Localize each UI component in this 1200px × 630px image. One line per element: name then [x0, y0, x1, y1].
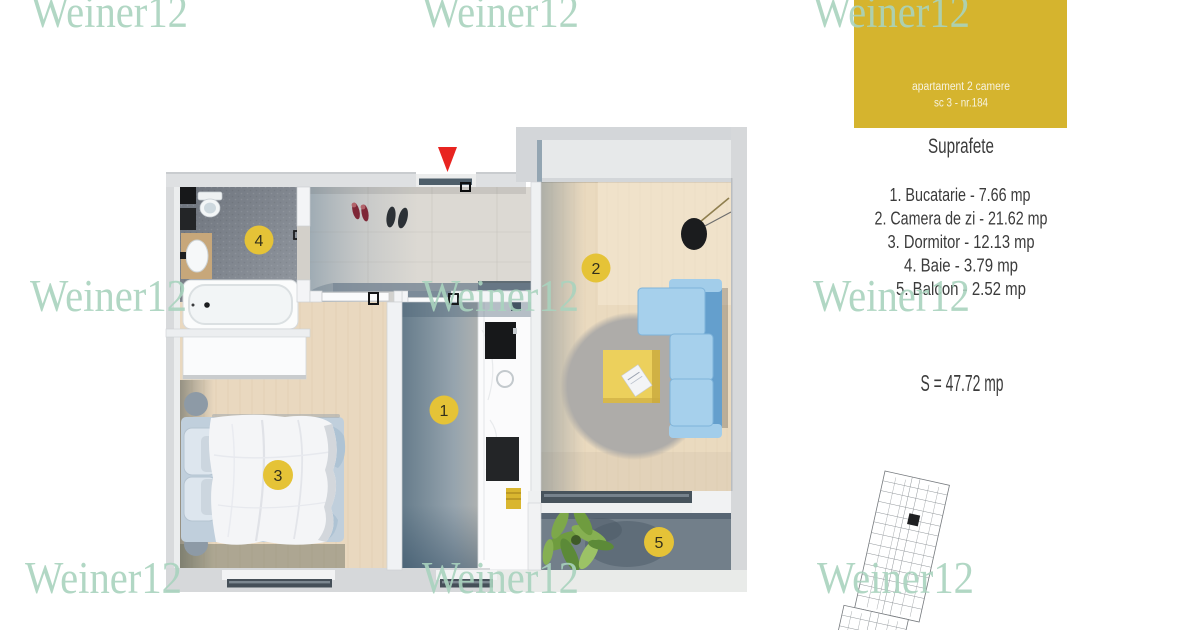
- svg-text:Weiner12: Weiner12: [422, 0, 579, 37]
- svg-text:Weiner12: Weiner12: [31, 0, 188, 37]
- svg-text:5: 5: [655, 535, 664, 552]
- svg-text:Weiner12: Weiner12: [817, 553, 974, 603]
- svg-text:Weiner12: Weiner12: [25, 553, 182, 603]
- svg-text:3. Dormitor - 12.13 mp: 3. Dormitor - 12.13 mp: [888, 231, 1035, 252]
- svg-text:4: 4: [255, 233, 264, 250]
- svg-text:2: 2: [592, 261, 601, 278]
- svg-text:2. Camera de zi - 21.62 mp: 2. Camera de zi - 21.62 mp: [875, 208, 1048, 229]
- svg-text:Weiner12: Weiner12: [813, 0, 970, 37]
- svg-text:Weiner12: Weiner12: [422, 553, 579, 603]
- svg-text:Weiner12: Weiner12: [813, 271, 970, 321]
- svg-text:Weiner12: Weiner12: [30, 271, 187, 321]
- svg-text:S = 47.72 mp: S = 47.72 mp: [921, 370, 1004, 396]
- svg-text:apartament 2 camere: apartament 2 camere: [912, 81, 1010, 93]
- svg-text:sc 3 - nr.184: sc 3 - nr.184: [934, 98, 989, 110]
- svg-text:3: 3: [274, 468, 283, 485]
- svg-text:1: 1: [440, 403, 449, 420]
- svg-text:Suprafete: Suprafete: [928, 135, 994, 158]
- svg-text:Weiner12: Weiner12: [422, 271, 579, 321]
- svg-text:1. Bucatarie - 7.66 mp: 1. Bucatarie - 7.66 mp: [890, 184, 1031, 205]
